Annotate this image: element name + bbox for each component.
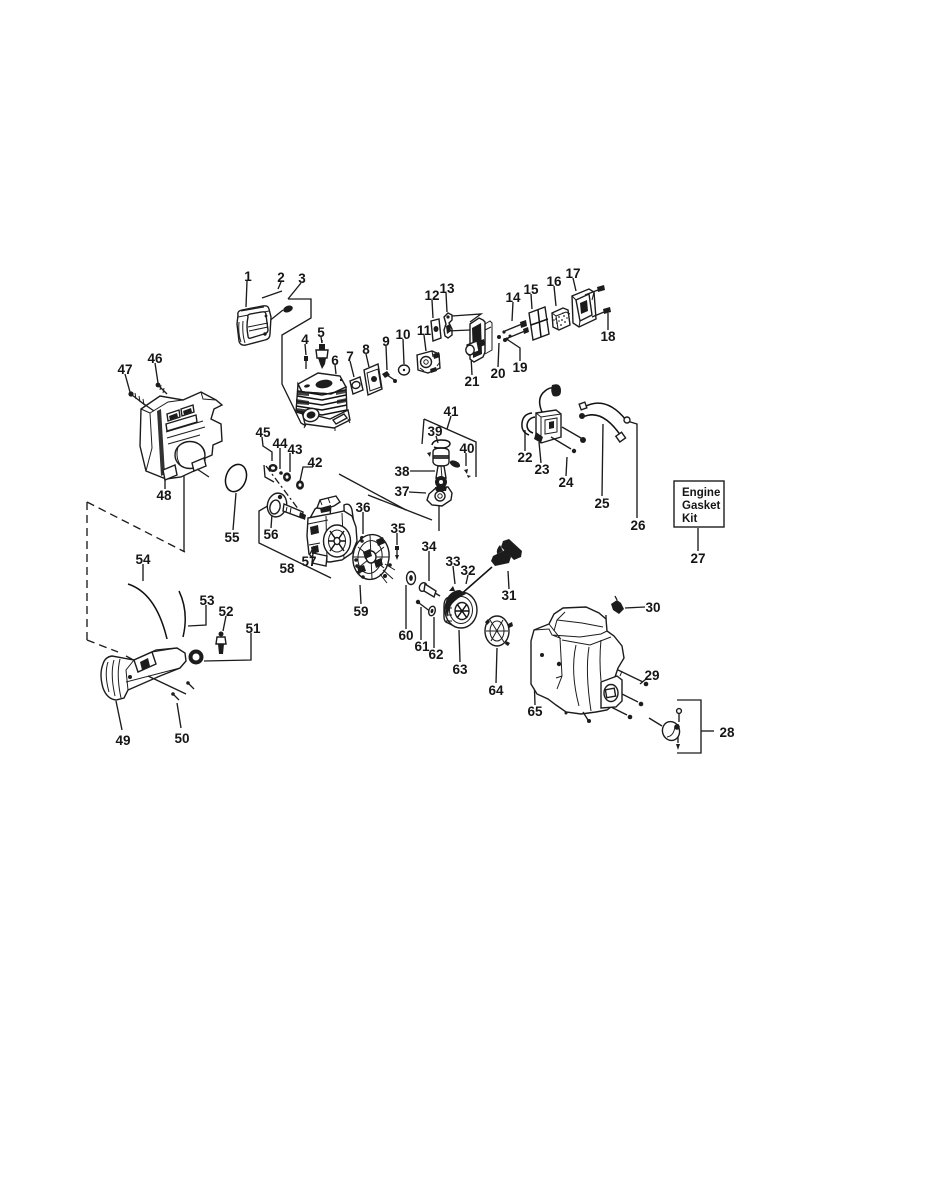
- svg-text:9: 9: [382, 334, 390, 349]
- svg-text:33: 33: [445, 554, 461, 569]
- svg-text:36: 36: [355, 500, 371, 515]
- svg-text:7: 7: [346, 349, 354, 364]
- svg-text:Engine: Engine: [682, 487, 720, 499]
- svg-text:2: 2: [277, 270, 285, 285]
- svg-text:37: 37: [394, 484, 409, 499]
- svg-text:45: 45: [255, 425, 271, 440]
- svg-text:50: 50: [174, 731, 189, 746]
- svg-text:16: 16: [546, 274, 562, 289]
- svg-text:19: 19: [512, 360, 527, 375]
- svg-text:52: 52: [218, 604, 233, 619]
- svg-text:55: 55: [224, 530, 240, 545]
- svg-text:44: 44: [272, 436, 288, 451]
- svg-text:5: 5: [317, 325, 325, 340]
- svg-text:28: 28: [719, 725, 735, 740]
- svg-text:14: 14: [505, 290, 521, 305]
- svg-text:35: 35: [390, 521, 406, 536]
- svg-text:20: 20: [490, 366, 505, 381]
- svg-text:46: 46: [147, 351, 163, 366]
- svg-text:24: 24: [558, 475, 574, 490]
- svg-text:49: 49: [115, 733, 130, 748]
- svg-text:6: 6: [331, 353, 339, 368]
- svg-text:Kit: Kit: [682, 513, 698, 525]
- svg-text:32: 32: [460, 563, 475, 578]
- svg-text:4: 4: [301, 332, 309, 347]
- svg-text:13: 13: [439, 281, 455, 296]
- svg-text:64: 64: [488, 683, 504, 698]
- svg-text:54: 54: [135, 552, 151, 567]
- svg-text:12: 12: [424, 288, 439, 303]
- svg-text:30: 30: [645, 600, 660, 615]
- svg-text:58: 58: [279, 561, 295, 576]
- svg-text:65: 65: [527, 704, 543, 719]
- svg-text:39: 39: [427, 424, 442, 439]
- svg-text:23: 23: [534, 462, 550, 477]
- svg-text:38: 38: [394, 464, 410, 479]
- svg-text:56: 56: [263, 527, 279, 542]
- svg-text:40: 40: [459, 441, 474, 456]
- svg-text:63: 63: [452, 662, 468, 677]
- svg-text:42: 42: [307, 455, 322, 470]
- svg-text:59: 59: [353, 604, 368, 619]
- svg-text:57: 57: [301, 554, 316, 569]
- svg-text:21: 21: [464, 374, 480, 389]
- svg-text:31: 31: [501, 588, 517, 603]
- svg-text:8: 8: [362, 342, 370, 357]
- svg-text:60: 60: [398, 628, 413, 643]
- svg-text:34: 34: [421, 539, 437, 554]
- svg-text:Gasket: Gasket: [682, 500, 721, 512]
- svg-text:10: 10: [395, 327, 410, 342]
- svg-text:48: 48: [156, 488, 172, 503]
- svg-text:15: 15: [523, 282, 539, 297]
- svg-text:27: 27: [690, 551, 705, 566]
- svg-text:62: 62: [428, 647, 443, 662]
- svg-text:22: 22: [517, 450, 532, 465]
- svg-text:3: 3: [298, 271, 306, 286]
- svg-text:51: 51: [245, 621, 261, 636]
- svg-text:17: 17: [565, 266, 580, 281]
- svg-text:47: 47: [117, 362, 132, 377]
- svg-text:29: 29: [644, 668, 659, 683]
- svg-text:18: 18: [600, 329, 616, 344]
- svg-text:11: 11: [417, 323, 432, 338]
- svg-text:43: 43: [287, 442, 303, 457]
- svg-text:25: 25: [594, 496, 610, 511]
- svg-text:53: 53: [199, 593, 215, 608]
- svg-text:26: 26: [630, 518, 646, 533]
- svg-text:1: 1: [244, 269, 252, 284]
- svg-text:41: 41: [443, 404, 459, 419]
